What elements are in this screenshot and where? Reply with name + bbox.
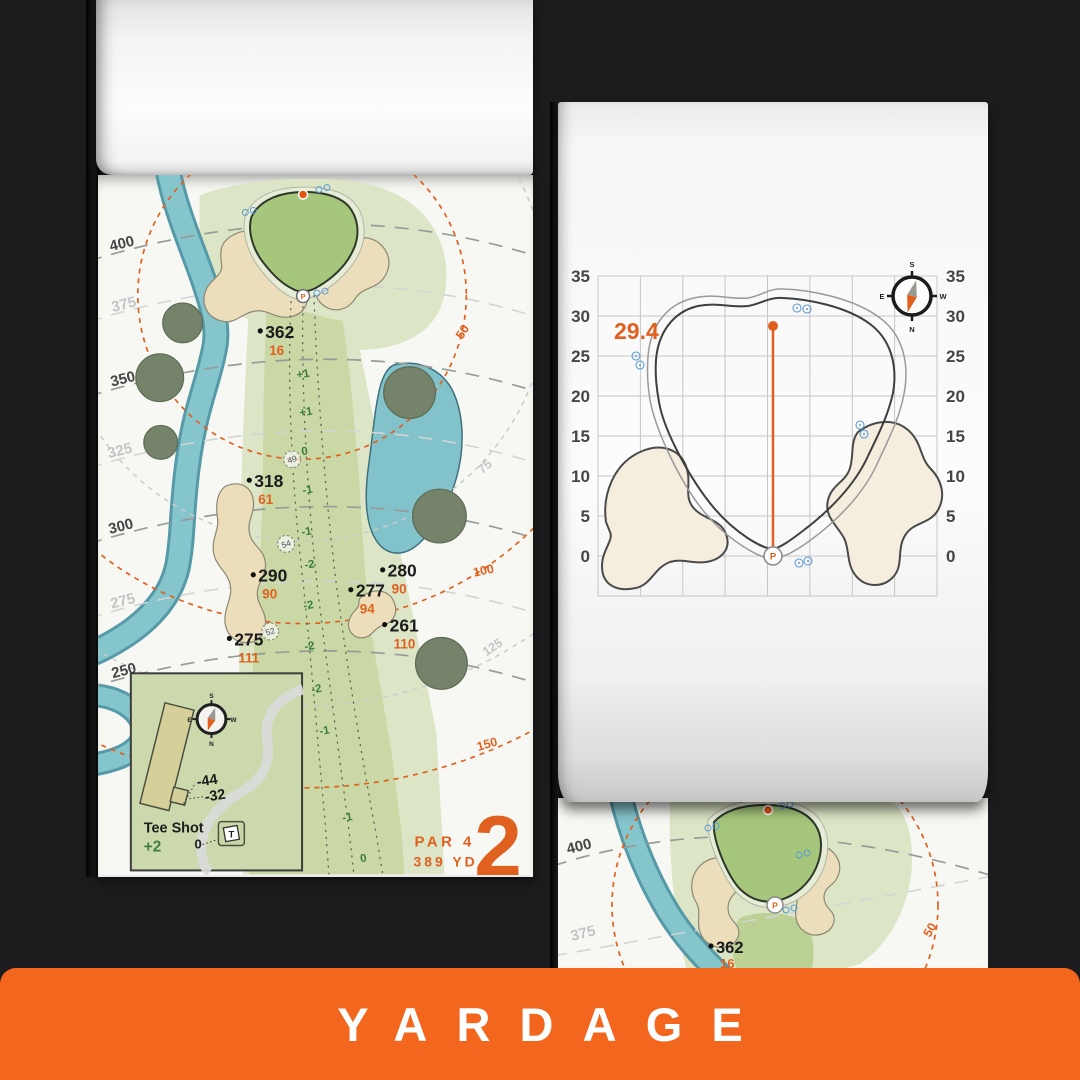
svg-text:5: 5 [946, 507, 955, 526]
hole-number: 2 [474, 799, 522, 875]
aim-dot [299, 190, 308, 199]
right-booklet: P 400 375 50 362 16 [558, 102, 988, 968]
svg-text:15: 15 [571, 427, 590, 446]
svg-text:16: 16 [269, 343, 284, 358]
svg-text:90: 90 [392, 582, 407, 597]
tee-marker-icon: T [229, 830, 235, 841]
svg-text:-2: -2 [304, 640, 316, 653]
depth-label: 29.4 [614, 318, 659, 344]
svg-text:N: N [909, 325, 914, 334]
pin-marker: P [297, 290, 310, 303]
svg-text:P: P [770, 552, 777, 563]
distance-label: 350 [109, 368, 137, 391]
flipped-blank-page [96, 0, 533, 175]
svg-text:-2: -2 [303, 599, 315, 612]
svg-text:35: 35 [946, 267, 965, 286]
arc-label: 125 [480, 636, 505, 659]
svg-text:110: 110 [394, 636, 416, 651]
svg-text:362: 362 [265, 322, 294, 342]
axis-labels-left: 35 30 25 20 15 10 5 0 [571, 267, 590, 566]
svg-text:S: S [209, 693, 214, 700]
tee-inset-title: Tee Shot [144, 821, 204, 837]
svg-text:W: W [230, 717, 237, 724]
svg-text:10: 10 [946, 467, 965, 486]
svg-text:275: 275 [234, 629, 263, 649]
svg-text:90: 90 [262, 587, 277, 602]
pin-marker: P [767, 897, 783, 913]
svg-text:W: W [939, 292, 947, 301]
yardage-carry: 362 [716, 939, 744, 957]
forward-tee-box [170, 787, 188, 805]
svg-text:61: 61 [258, 492, 273, 507]
arc-label: 100 [472, 562, 495, 580]
svg-text:0: 0 [581, 547, 590, 566]
svg-text:+1: +1 [299, 405, 314, 419]
distance-label: 325 [106, 440, 134, 463]
svg-text:318: 318 [254, 471, 283, 491]
distance-label: 375 [110, 293, 138, 316]
svg-text:25: 25 [571, 347, 590, 366]
yardage-banner: YARDAGE [0, 968, 1080, 1080]
distance-label: 275 [109, 590, 137, 613]
distance-label: 400 [108, 233, 136, 256]
arc-label: 50 [453, 322, 472, 341]
green-detail-page: 35 30 25 20 15 10 5 0 35 30 25 20 15 10 … [558, 102, 988, 802]
svg-text:277: 277 [356, 581, 385, 601]
banner-title: YARDAGE [308, 997, 772, 1052]
hole-map-page: 400 375 350 325 300 275 250 50 75 100 12… [98, 175, 533, 877]
svg-text:25: 25 [946, 347, 965, 366]
distance-label: 375 [569, 922, 597, 945]
svg-text:111: 111 [238, 650, 259, 665]
left-booklet: 400 375 350 325 300 275 250 50 75 100 12… [96, 0, 533, 877]
axis-labels-right: 35 30 25 20 15 10 5 0 [946, 267, 965, 566]
aim-dot [764, 806, 773, 815]
svg-text:94: 94 [360, 602, 375, 617]
svg-text:30: 30 [946, 307, 965, 326]
svg-text:280: 280 [388, 561, 417, 581]
svg-text:20: 20 [946, 387, 965, 406]
svg-text:10: 10 [571, 467, 590, 486]
preview-map: P 400 375 50 362 16 [558, 798, 988, 968]
svg-text:5: 5 [581, 507, 590, 526]
product-photo: 400 375 350 325 300 275 250 50 75 100 12… [0, 0, 1080, 1080]
tee-zero-label: 0 [195, 837, 202, 852]
svg-text:15: 15 [946, 427, 965, 446]
svg-text:E: E [879, 292, 884, 301]
arc-label: 150 [475, 735, 499, 754]
arc-label: 75 [475, 457, 495, 477]
tee-elevation: +2 [144, 838, 162, 855]
svg-text:P: P [772, 901, 778, 911]
next-page-preview: P 400 375 50 362 16 [558, 798, 988, 968]
arc-label: 50 [920, 920, 939, 939]
distance-label: 400 [565, 835, 593, 858]
hole-map: 400 375 350 325 300 275 250 50 75 100 12… [98, 175, 533, 875]
svg-text:290: 290 [258, 566, 287, 586]
distance-label: 300 [107, 515, 135, 538]
yardage-label: 389 YD [414, 853, 478, 869]
tee-shot-inset: -44 -32 Tee Shot +2 0 T [131, 673, 303, 872]
par-label: PAR 4 [415, 834, 475, 851]
svg-text:35: 35 [571, 267, 590, 286]
svg-text:S: S [909, 260, 914, 269]
svg-text:+1: +1 [296, 368, 311, 382]
svg-text:-2: -2 [304, 558, 316, 571]
svg-text:N: N [209, 741, 214, 748]
svg-text:-2: -2 [311, 683, 323, 696]
yardage-front: 16 [720, 956, 734, 968]
green-detail-map: 35 30 25 20 15 10 5 0 35 30 25 20 15 10 … [558, 102, 988, 802]
pin-marker: P [764, 547, 782, 565]
pin-label: P [301, 292, 306, 301]
svg-text:E: E [187, 717, 192, 724]
svg-text:30: 30 [571, 307, 590, 326]
tee-carry-near: -32 [204, 787, 227, 806]
svg-text:0: 0 [946, 547, 955, 566]
svg-text:261: 261 [390, 616, 419, 636]
svg-text:20: 20 [571, 387, 590, 406]
